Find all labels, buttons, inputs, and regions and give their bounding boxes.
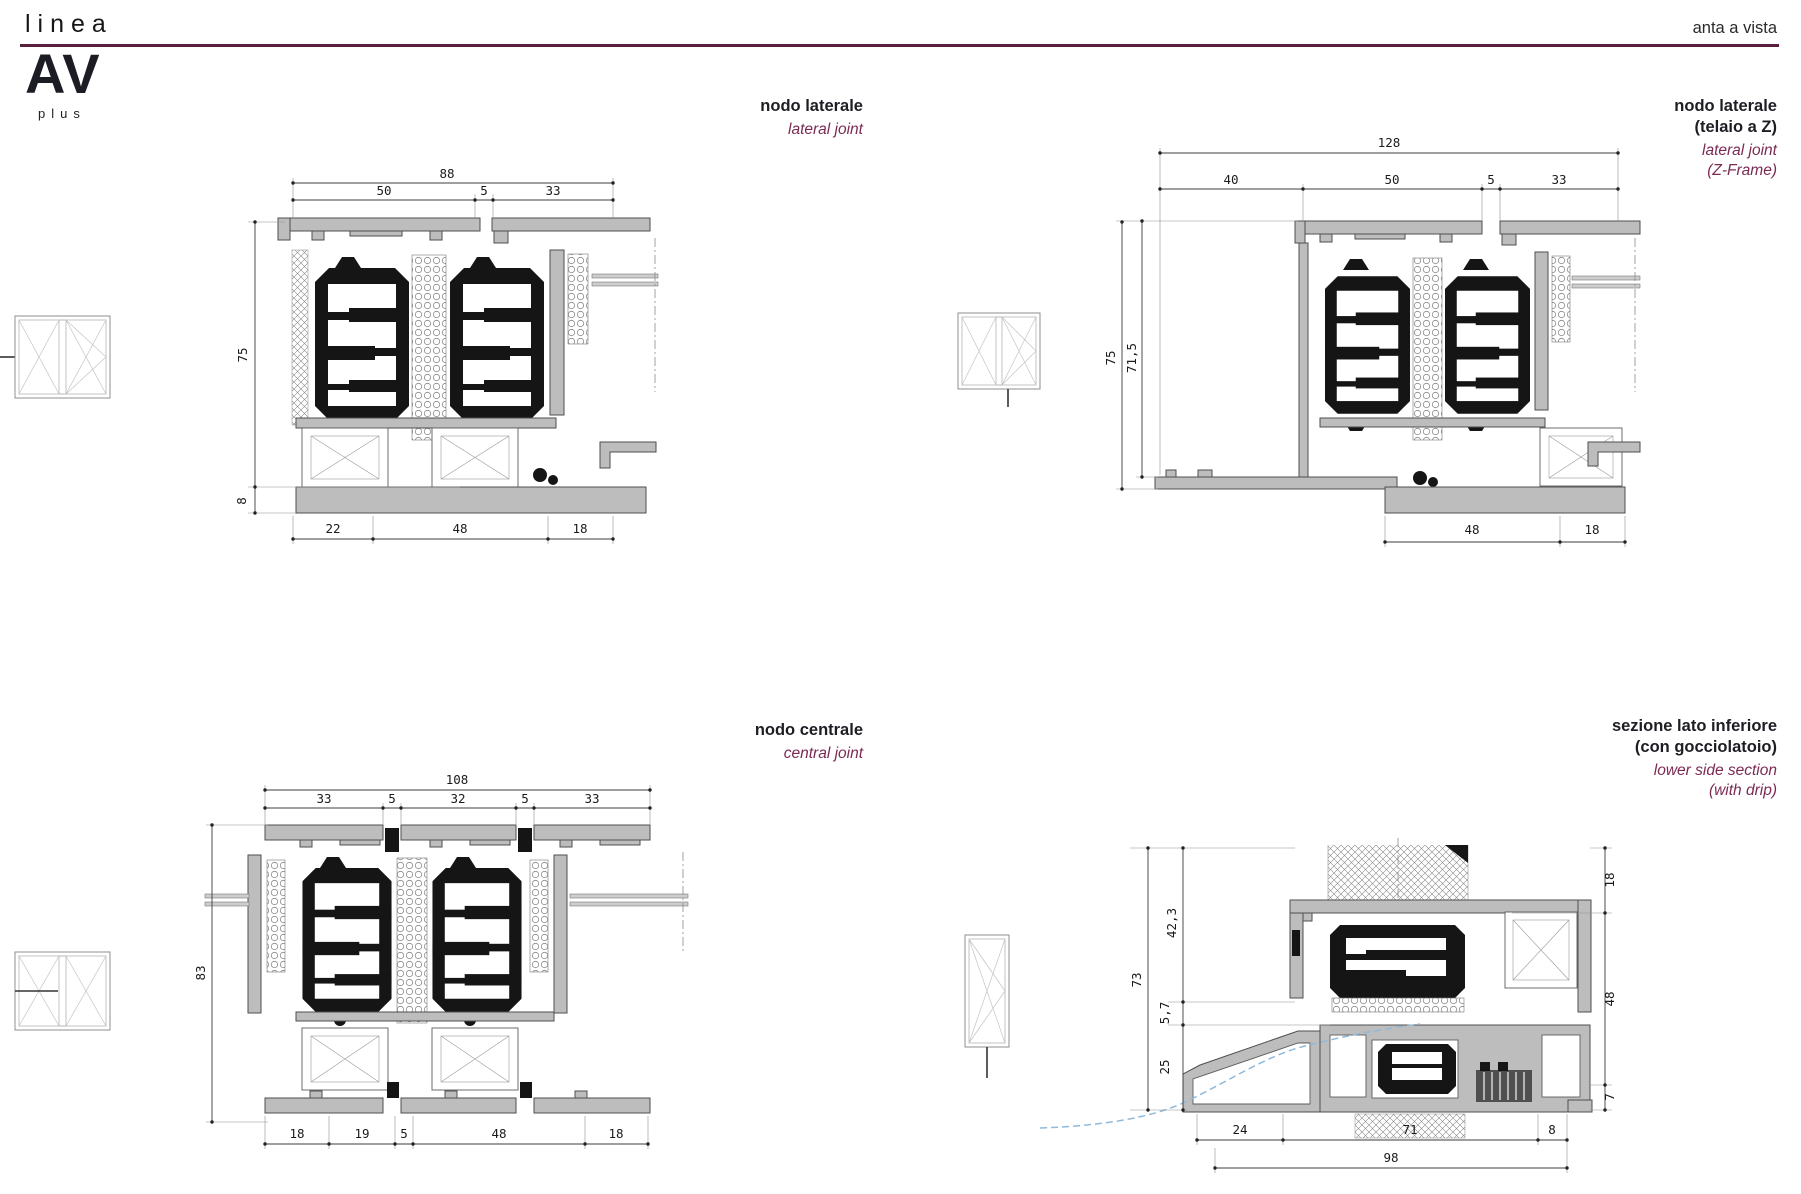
page-label: anta a vista [1693, 19, 1777, 38]
dim-label: 18 [1584, 522, 1599, 537]
dim-label: 22 [325, 521, 340, 536]
dim-label: 33 [316, 791, 331, 806]
dim-label: 18 [1602, 872, 1617, 887]
dim-label: 5 [1487, 172, 1495, 187]
dim-label: 24 [1232, 1122, 1247, 1137]
dim-label: 18 [608, 1126, 623, 1141]
dim-label: 8 [1548, 1122, 1556, 1137]
dim-label: 19 [354, 1126, 369, 1141]
dim-label: 33 [545, 183, 560, 198]
dim-label: 83 [193, 965, 208, 980]
dim-label: 98 [1383, 1150, 1398, 1165]
dim-label: 40 [1223, 172, 1238, 187]
dim-label: 18 [289, 1126, 304, 1141]
dim-label: 42,3 [1164, 908, 1179, 938]
section-drawing-lateral-joint: 88 50 5 33 75 8 22 48 18 [0, 130, 900, 600]
dim-label: 48 [491, 1126, 506, 1141]
catalog-page: linea anta a vista AV plus nodo laterale… [0, 0, 1801, 1194]
dim-label: 7 [1602, 1093, 1617, 1101]
dim-label: 5 [388, 791, 396, 806]
dim-label: 128 [1378, 135, 1401, 150]
profile-geometry [1040, 838, 1592, 1138]
dim-label: 75 [1103, 350, 1118, 365]
drawing-title: nodo laterale [1674, 96, 1777, 117]
dim-label: 5 [480, 183, 488, 198]
section-drawing-central-joint: 108 33 5 32 5 33 83 18 19 5 48 18 [0, 600, 900, 1194]
dim-label: 18 [572, 521, 587, 536]
dim-label: 32 [450, 791, 465, 806]
dim-label: 48 [1602, 991, 1617, 1006]
series-logo: AV [25, 46, 101, 102]
section-drawing-lower-side-with-drip: 73 42,3 5,7 25 18 48 7 24 71 8 98 [900, 600, 1801, 1194]
dim-label: 48 [452, 521, 467, 536]
dim-label: 33 [584, 791, 599, 806]
accent-rule [20, 44, 1779, 47]
dim-label: 71,5 [1124, 343, 1139, 373]
brand-line-text: linea [25, 10, 113, 39]
dim-label: 5 [521, 791, 529, 806]
drawing-title: nodo laterale [760, 96, 863, 117]
dim-label: 5 [400, 1126, 408, 1141]
dim-label: 73 [1129, 972, 1144, 987]
dim-label: 50 [1384, 172, 1399, 187]
series-logo-sub: plus [38, 106, 86, 121]
profile-geometry [205, 825, 688, 1113]
profile-geometry [1155, 221, 1640, 513]
dim-label: 75 [235, 347, 250, 362]
dim-label: 33 [1551, 172, 1566, 187]
dim-label: 25 [1157, 1059, 1172, 1074]
dim-label: 5,7 [1157, 1002, 1172, 1025]
dim-label: 50 [376, 183, 391, 198]
dim-label: 88 [439, 166, 454, 181]
dim-label: 8 [234, 497, 249, 505]
dim-label: 48 [1464, 522, 1479, 537]
dim-label: 108 [446, 772, 469, 787]
profile-geometry [278, 218, 658, 513]
section-drawing-lateral-joint-z-frame: 128 40 50 5 33 75 71,5 48 18 [900, 130, 1801, 600]
dim-label: 71 [1402, 1122, 1417, 1137]
